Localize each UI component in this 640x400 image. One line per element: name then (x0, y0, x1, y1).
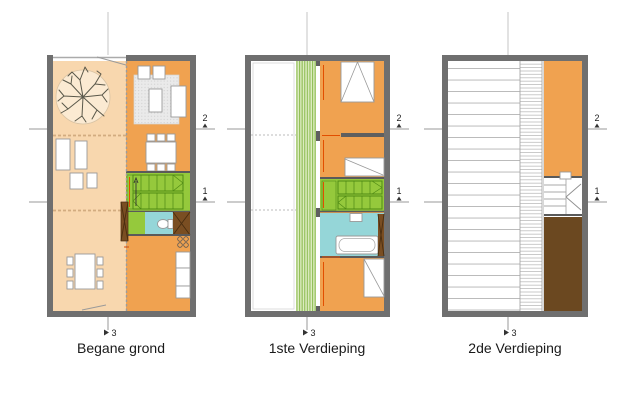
section-1-label: 1 (396, 186, 401, 196)
bathroom (320, 213, 384, 256)
floor-label-2de-verdieping: 2de Verdieping (468, 340, 561, 356)
section-1-label: 1 (594, 186, 599, 196)
sink (560, 172, 571, 179)
lounger (75, 141, 87, 169)
side-table (87, 173, 97, 188)
floor-plans-page: 3 2 1 Begane grond (0, 0, 640, 400)
entry-shaft (121, 202, 128, 241)
partition-wall (341, 133, 384, 137)
kitchen-counter (176, 252, 190, 268)
outdoor-dining-set (67, 254, 103, 289)
stairs-hall (126, 173, 190, 212)
bathroom (126, 212, 190, 235)
roof-volume (544, 217, 582, 311)
sink (350, 214, 362, 222)
armchair (138, 66, 150, 79)
bedroom-2 (345, 158, 384, 176)
stairs (320, 179, 384, 212)
coffee-table (149, 89, 162, 112)
dining-set (146, 134, 176, 171)
section-2-label: 2 (396, 113, 401, 123)
section-3-arrow (104, 330, 109, 336)
plan-2de-verdieping: 3 2 1 2de Verdieping (424, 12, 607, 356)
kitchen-counter (176, 268, 190, 286)
section-3-label: 3 (112, 328, 117, 338)
side-table (70, 173, 83, 189)
section-3-arrow (303, 330, 308, 336)
sofa (171, 86, 186, 117)
bed (341, 62, 374, 102)
section-3-label: 3 (311, 328, 316, 338)
roof-room (544, 61, 582, 177)
stair-flight (338, 196, 382, 209)
living-room (134, 66, 186, 124)
dining-table (75, 254, 95, 289)
section-3-label: 3 (512, 328, 517, 338)
section-2-label: 2 (202, 113, 207, 123)
floor-plans-drawing: 3 2 1 Begane grond (0, 0, 640, 400)
dining-table (146, 142, 176, 163)
lounger (56, 139, 70, 170)
floor-label-1ste-verdieping: 1ste Verdieping (269, 340, 366, 356)
floor-label-begane-grond: Begane grond (77, 340, 165, 356)
bedroom-3 (364, 259, 384, 297)
roof-slats (520, 61, 542, 311)
section-1-label: 1 (202, 186, 207, 196)
roof-deck (448, 61, 520, 311)
stair-flight (133, 193, 183, 209)
plan-1ste-verdieping: 3 2 1 1ste Verdieping (227, 12, 409, 356)
plan-begane-grond: 3 2 1 Begane grond (29, 12, 215, 356)
louver-screen (296, 61, 316, 311)
section-2-label: 2 (594, 113, 599, 123)
kitchen-counter (176, 286, 190, 298)
toilet (158, 220, 169, 229)
terrace (53, 55, 126, 311)
armchair (153, 66, 165, 79)
section-3-arrow (504, 330, 509, 336)
